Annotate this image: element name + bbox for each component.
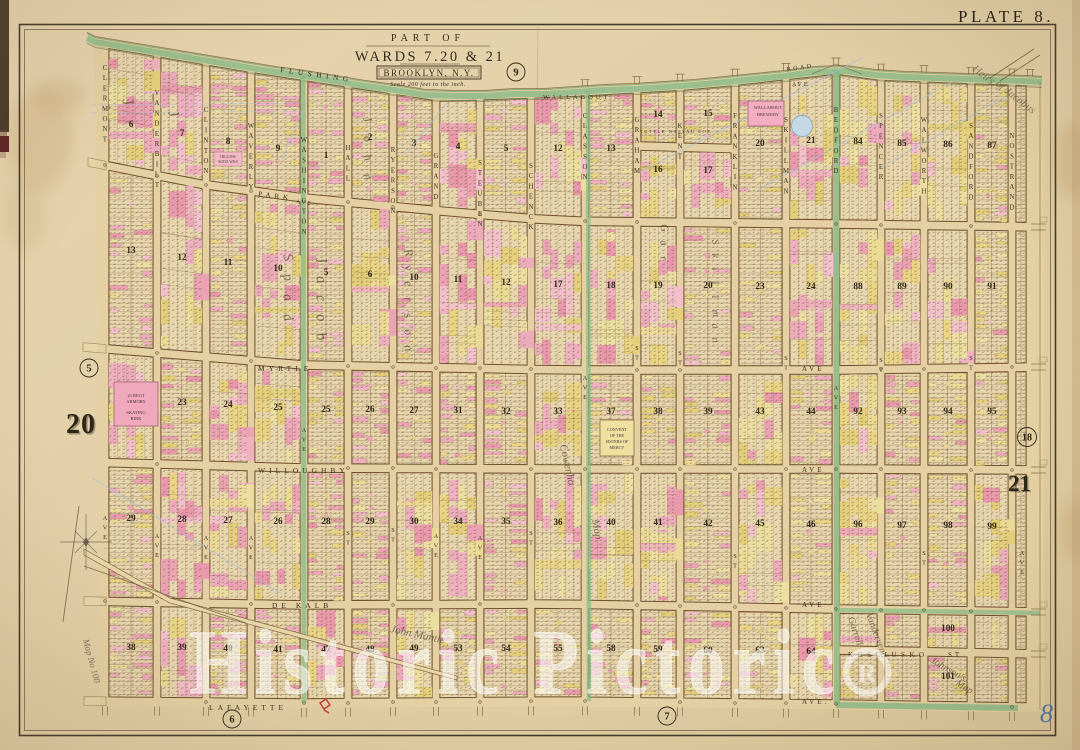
- svg-text:R: R: [858, 659, 877, 688]
- svg-text:Historic Pictoric: Historic Pictoric: [190, 612, 843, 714]
